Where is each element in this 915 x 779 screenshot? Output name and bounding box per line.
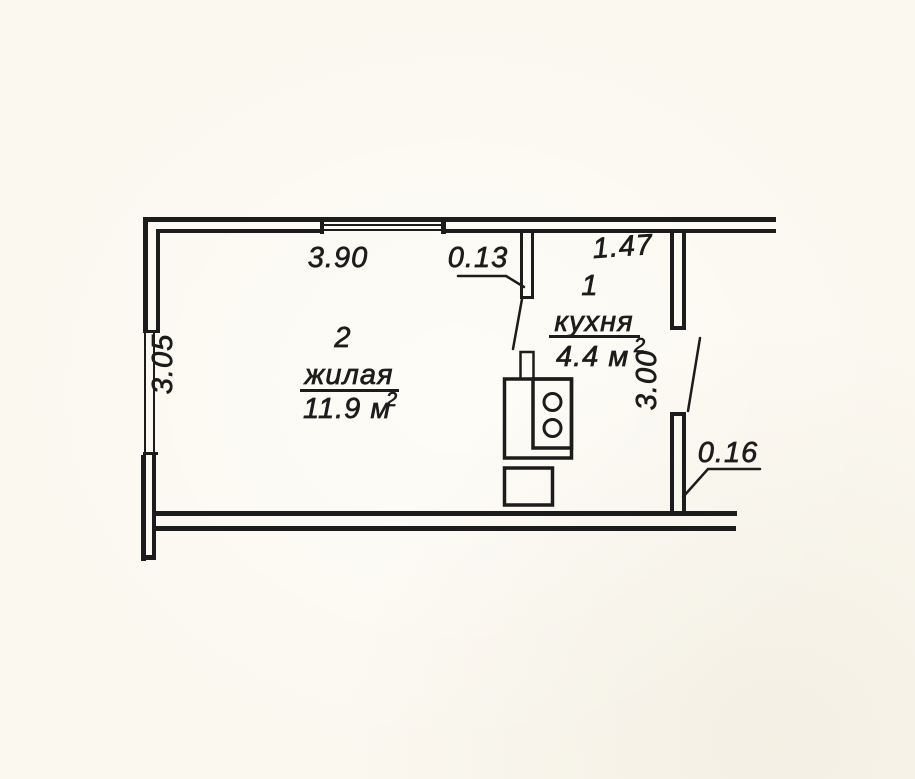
dim-left-wall-height: 3.05	[147, 334, 179, 394]
room-area-superscript: 2	[385, 389, 397, 411]
room-area-superscript: 2	[633, 335, 645, 357]
window-top-cap-right	[441, 217, 446, 234]
wall-right-lower-left-line	[670, 412, 674, 515]
wall-right-upper-cap	[670, 326, 686, 330]
stove-counter	[505, 379, 572, 458]
stove-burner	[544, 420, 561, 437]
dim-kitchen-top-width: 1.47	[592, 229, 655, 265]
window-left-cap-bottom	[143, 452, 158, 455]
room-name: жилая	[302, 359, 393, 391]
scanned-floorplan-page: 3.90 0.13 1.47 3.05 3.00 0.16 2 жилая 11…	[0, 0, 915, 779]
dim-right-wall-thickness: 0.16	[698, 437, 758, 469]
wall-right-lower	[670, 412, 686, 515]
leader-right-wall-thickness	[683, 469, 760, 497]
window-left-line-a	[144, 333, 146, 455]
window-left-cap-top	[143, 330, 158, 333]
door-swing-icon	[688, 338, 700, 411]
wall-right-upper-right-line	[682, 231, 686, 330]
wall-bottom-line-a	[156, 511, 737, 516]
sink-icon	[505, 468, 553, 505]
room-name-underline	[549, 335, 640, 338]
wall-left-inner-lower	[152, 455, 156, 558]
room-name: кухня	[554, 306, 633, 338]
floor-plan-drawing: 3.90 0.13 1.47 3.05 3.00 0.16 2 жилая 11…	[0, 0, 915, 779]
partition-line-left	[520, 231, 523, 299]
wall-left-inner-upper	[156, 229, 160, 333]
room-number: 2	[333, 322, 351, 354]
stove-pipe	[521, 352, 534, 379]
wall-left-lower-cap	[141, 555, 156, 560]
partition-line-right	[531, 231, 534, 299]
wall-right-lower-cap	[670, 412, 686, 416]
dim-partition-thickness: 0.13	[448, 242, 508, 274]
room-number: 1	[581, 270, 598, 302]
partition-stub	[520, 231, 534, 299]
room-name-underline	[300, 389, 399, 392]
window-top-line-a	[322, 224, 443, 226]
room-area: 11.9 м	[303, 393, 391, 425]
window-top-line-b	[322, 229, 443, 231]
dim-kitchen-right-height: 3.00	[631, 350, 663, 410]
wall-left-outer-upper	[143, 217, 148, 333]
wall-top-outer	[143, 217, 776, 222]
door-swing-icon	[513, 299, 522, 349]
wall-right-lower-right-line	[682, 412, 686, 515]
leader-partition-thickness	[458, 276, 524, 287]
wall-right-upper	[670, 231, 686, 330]
dim-top-window-width: 3.90	[308, 242, 368, 274]
wall-top-inner-left	[156, 229, 322, 233]
room-label-living: 2 жилая 11.9 м 2	[300, 322, 399, 425]
wall-bottom-line-b	[156, 526, 736, 531]
room-area: 4.4 м	[556, 341, 629, 373]
wall-left-outer-lower	[141, 455, 146, 561]
stove-burner	[544, 394, 561, 411]
wall-right-upper-left-line	[670, 231, 674, 330]
